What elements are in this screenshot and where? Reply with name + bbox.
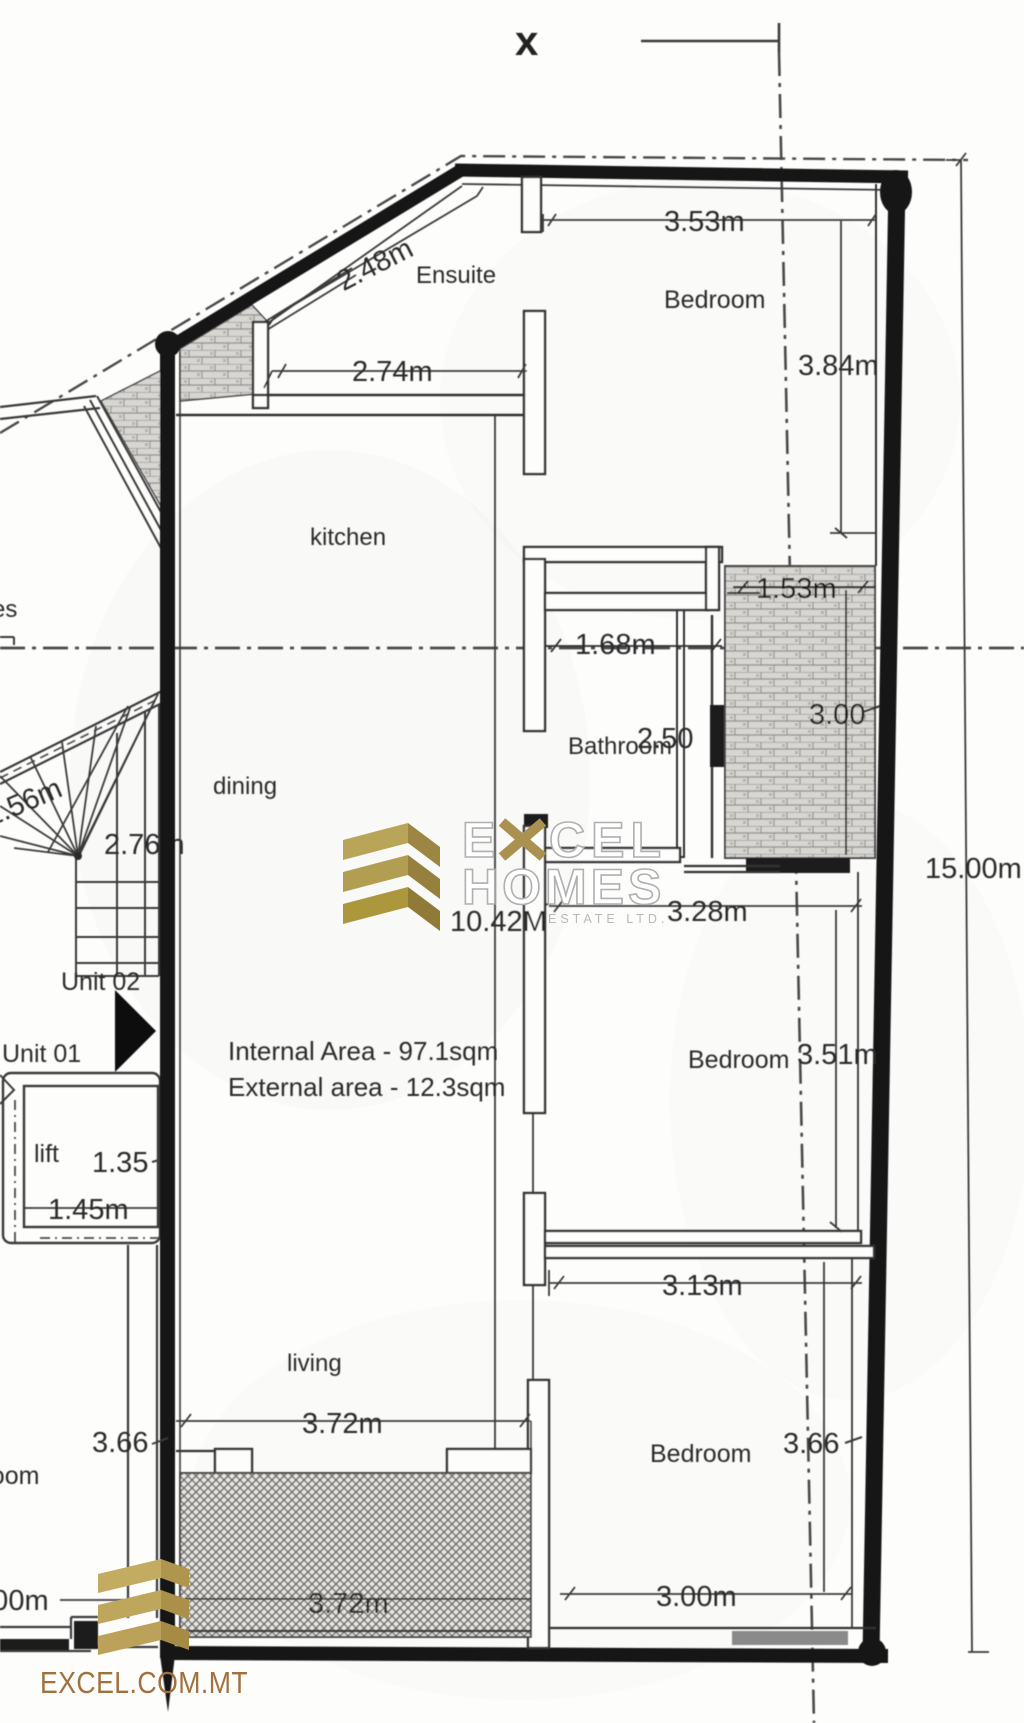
svg-text:3.28m: 3.28m — [667, 896, 748, 928]
svg-text:3.66: 3.66 — [92, 1427, 148, 1459]
svg-text:EXCEL.COM.MT: EXCEL.COM.MT — [40, 1666, 248, 1700]
svg-text:kitchen: kitchen — [310, 524, 386, 551]
svg-text:Ensuite: Ensuite — [416, 262, 496, 289]
svg-text:15.00m: 15.00m — [925, 853, 1022, 885]
svg-text:Internal Area - 97.1sqm: Internal Area - 97.1sqm — [228, 1036, 498, 1066]
svg-text:3.00m: 3.00m — [0, 1585, 49, 1617]
svg-text:2.74m: 2.74m — [352, 356, 433, 388]
svg-text:ESTATE LTD.: ESTATE LTD. — [548, 912, 668, 926]
svg-text:3.53m: 3.53m — [664, 206, 745, 238]
svg-text:3.84m: 3.84m — [798, 350, 879, 382]
svg-text:1.45m: 1.45m — [48, 1194, 129, 1226]
svg-text:dining: dining — [213, 773, 277, 800]
svg-text:Bedroom: Bedroom — [0, 1462, 39, 1490]
svg-text:3.72m: 3.72m — [302, 1408, 383, 1440]
svg-text:3.66: 3.66 — [783, 1428, 839, 1460]
svg-text:1.35: 1.35 — [92, 1147, 148, 1179]
svg-text:1.53m: 1.53m — [756, 573, 837, 605]
svg-text:3.72m: 3.72m — [308, 1588, 389, 1620]
svg-text:3.00: 3.00 — [809, 699, 865, 731]
svg-text:living: living — [287, 1350, 342, 1377]
svg-text:External area - 12.3sqm: External area - 12.3sqm — [228, 1072, 505, 1102]
svg-text:3.00m: 3.00m — [656, 1581, 737, 1613]
svg-text:Unit 01: Unit 01 — [2, 1040, 81, 1068]
svg-text:Unit 02: Unit 02 — [61, 968, 140, 996]
svg-text:1.68m: 1.68m — [575, 629, 656, 661]
svg-text:Bedroom: Bedroom — [664, 286, 765, 314]
svg-text:2.50: 2.50 — [637, 723, 693, 755]
svg-text:HOMES: HOMES — [462, 859, 665, 915]
svg-text:lift: lift — [34, 1140, 59, 1168]
svg-text:Bedroom: Bedroom — [650, 1440, 751, 1468]
svg-text:x: x — [515, 17, 539, 64]
svg-text:es: es — [0, 596, 17, 623]
svg-text:3.13m: 3.13m — [662, 1270, 743, 1302]
svg-text:Bedroom: Bedroom — [688, 1046, 789, 1074]
svg-text:3.51m: 3.51m — [797, 1039, 878, 1071]
